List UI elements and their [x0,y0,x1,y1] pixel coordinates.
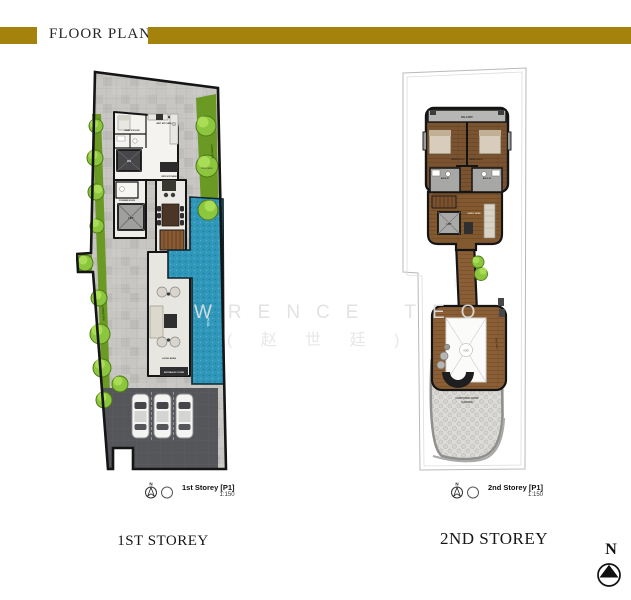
svg-text:BEDROOM 02: BEDROOM 02 [469,159,483,161]
bedroom-block [423,108,511,192]
svg-text:N: N [455,482,458,487]
plan1-scale-tag: N 1st Storey [P1] 1:150 [142,480,235,500]
plan1-storey-label: 1st Storey [P1] [182,483,235,492]
floor-plans-page: { "header": { "title": "FLOOR PLANS" }, … [0,0,631,600]
compass-north-label: N [599,541,623,559]
svg-text:BEDROOM 01: BEDROOM 01 [451,159,465,161]
svg-text:ENTRANCE FOYER: ENTRANCE FOYER [164,371,185,374]
staircase [160,230,184,250]
svg-text:GALLERY: GALLERY [453,278,456,289]
svg-text:POWDER ROOM: POWDER ROOM [119,200,135,202]
svg-text:POOL: POOL [206,318,210,327]
svg-text:LIVING AREA: LIVING AREA [162,357,176,360]
svg-text:CARPORCH ROOF: CARPORCH ROOF [455,396,479,400]
car [132,394,149,438]
svg-text:POOL DECK: POOL DECK [201,168,213,170]
second-storey-caption: 2ND STOREY [434,529,554,549]
parked-cars [132,394,193,438]
watermark-chinese: ( 赵 世 廷 ) [227,326,411,350]
svg-text:HS: HS [127,159,131,163]
svg-text:BATH 02: BATH 02 [483,177,492,180]
family-block [428,192,502,250]
svg-text:N: N [149,482,152,487]
svg-text:DRY KITCHEN: DRY KITCHEN [162,176,177,178]
svg-text:FAMILY AREA: FAMILY AREA [467,212,481,215]
plan2-storey-label: 2nd Storey [P1] [488,483,543,492]
svg-text:BALCONY: BALCONY [461,116,473,119]
compass-north-icon [595,561,623,589]
header-gold-bar-right [148,27,631,44]
section-marker-icon [162,487,173,498]
svg-text:LIFT: LIFT [446,223,452,226]
car [176,394,193,438]
svg-text:GARDEN: GARDEN [461,400,472,404]
first-storey-caption: 1ST STOREY [103,533,223,550]
plan1-scale: 1:150 [220,492,235,498]
car [154,394,171,438]
svg-text:LIFT: LIFT [128,216,134,220]
north-arrow-icon: N [448,480,486,500]
plan2-scale: 1:150 [528,492,543,498]
section-marker-icon [468,487,479,498]
svg-text:MAID'S ROOM: MAID'S ROOM [125,129,140,132]
header-gold-block-left [0,27,37,44]
stairs [432,196,456,208]
north-arrow-icon: N [142,480,180,500]
page-title: FLOOR PLANS [49,26,145,43]
svg-text:BATH 01: BATH 01 [441,177,450,180]
svg-text:VOID: VOID [463,350,469,353]
svg-text:WET KITCHEN: WET KITCHEN [156,123,172,125]
svg-text:BALCONY: BALCONY [495,338,499,349]
first-storey-plan: MAID'S ROOM WET KITCHEN HS POWDER ROOM L… [76,68,228,480]
second-storey-plan: BALCONY BEDROOM 01 BEDROOM 02 BATH 01 BA… [398,66,548,481]
plan2-scale-tag: N 2nd Storey [P1] 1:150 [448,480,543,500]
